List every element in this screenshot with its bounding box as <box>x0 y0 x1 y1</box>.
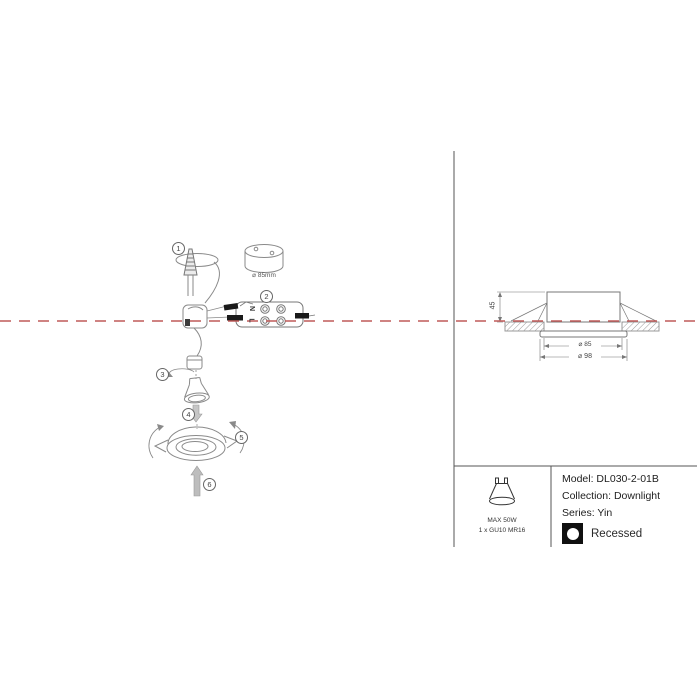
terminal-n-label: N <box>248 306 255 311</box>
ceiling-left <box>505 322 544 331</box>
panel-borders <box>454 151 697 547</box>
terminal-l-label: L <box>248 318 255 322</box>
terminal-block-icon <box>224 302 315 327</box>
collection-label: Collection: Downlight <box>562 490 660 502</box>
step-5-badge: 5 <box>235 431 248 444</box>
housing-body <box>547 292 620 322</box>
max-power-label: MAX 50W <box>474 517 530 524</box>
dim-cutout-label: ⌀ 85 <box>569 340 601 348</box>
step-6-badge: 6 <box>203 478 216 491</box>
ceiling-right <box>622 322 659 331</box>
installation-steps-diagram <box>149 245 315 497</box>
drill-icon <box>176 249 218 296</box>
cross-section-view <box>497 292 659 361</box>
step-4-badge: 4 <box>182 408 195 421</box>
rotate-arrow-icon <box>165 369 196 379</box>
dim-overall-label: ⌀ 98 <box>569 352 601 360</box>
line-art-layer <box>0 0 700 700</box>
gu10-lamp-icon <box>490 478 515 505</box>
lamp-type-label: 1 x GU10 MR16 <box>466 527 538 534</box>
trim-flange <box>540 331 627 337</box>
mounting-cup-icon <box>245 245 283 273</box>
downlight-trim-icon <box>155 424 237 461</box>
step-3-badge: 3 <box>156 368 169 381</box>
step-2-badge: 2 <box>260 290 273 303</box>
gu10-socket-icon <box>187 356 202 369</box>
mr16-bulb-icon <box>182 377 209 404</box>
hole-diameter-label: ⌀ 85mm <box>240 271 288 279</box>
dim-height <box>497 292 545 322</box>
mounting-type-label: Recessed <box>591 528 642 540</box>
step-1-badge: 1 <box>172 242 185 255</box>
series-label: Series: Yin <box>562 507 612 519</box>
dim-height-label: 45 <box>489 300 496 312</box>
recessed-circle-icon <box>562 523 583 544</box>
technical-drawing-canvas: 1 2 3 4 5 6 ⌀ 85mm N L 45 ⌀ 85 ⌀ 98 MAX … <box>0 0 700 700</box>
model-label: Model: DL030-2-01B <box>562 473 659 485</box>
junction-box-icon <box>183 305 207 356</box>
arrow-up-icon <box>191 466 203 496</box>
mains-cable <box>205 262 219 303</box>
